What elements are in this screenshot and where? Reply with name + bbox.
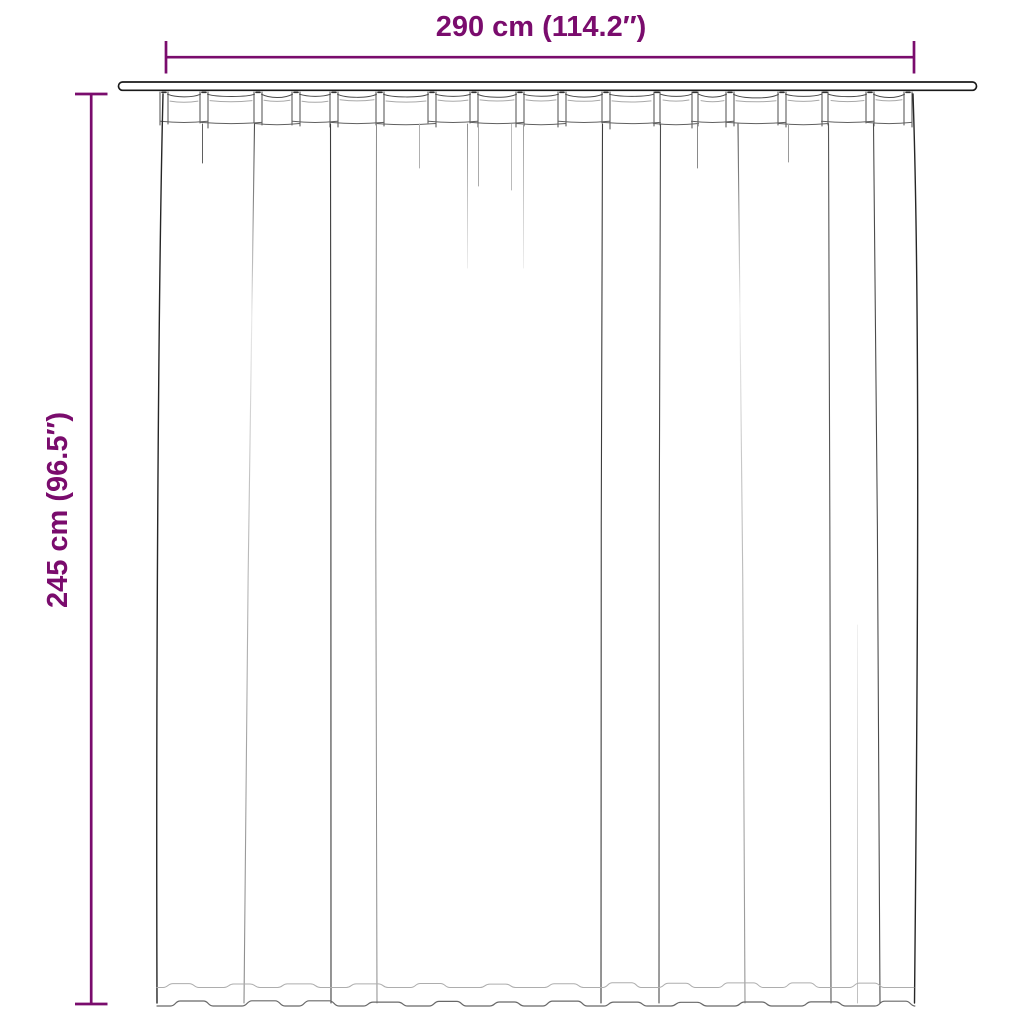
svg-text:245 cm (96.5″): 245 cm (96.5″) — [42, 412, 74, 608]
svg-text:290 cm (114.2″): 290 cm (114.2″) — [436, 11, 647, 43]
